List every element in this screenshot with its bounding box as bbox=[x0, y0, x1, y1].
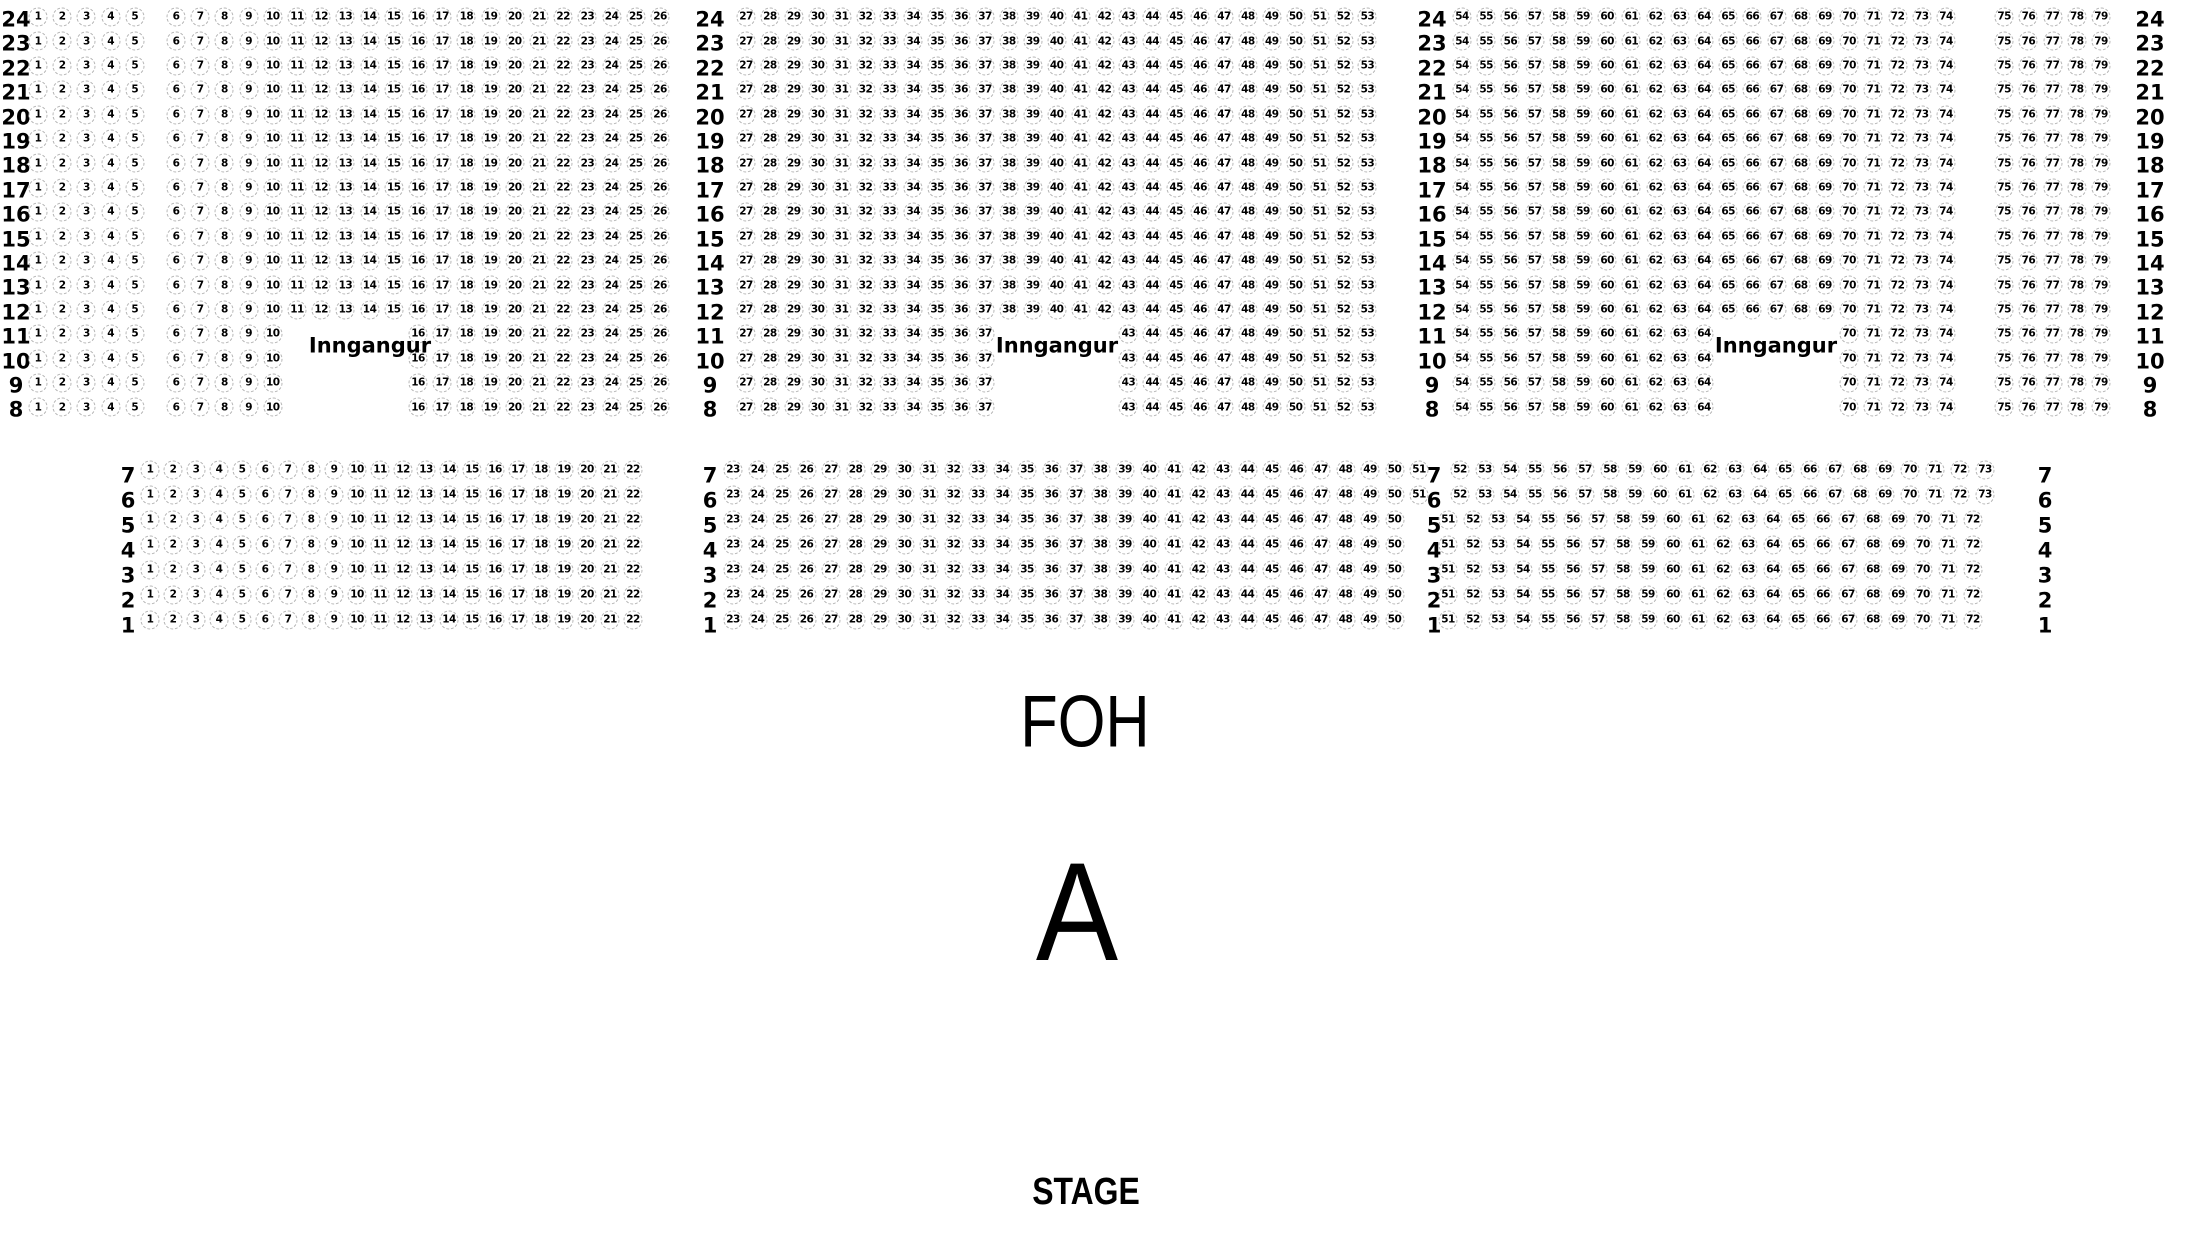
seat[interactable]: 32 bbox=[944, 561, 963, 580]
seat[interactable]: 30 bbox=[895, 611, 914, 630]
seat[interactable]: 21 bbox=[601, 486, 620, 505]
seat[interactable]: 48 bbox=[1336, 511, 1355, 530]
seat[interactable]: 1 bbox=[141, 536, 160, 555]
seat[interactable]: 36 bbox=[1042, 486, 1061, 505]
seat[interactable]: 49 bbox=[1361, 511, 1380, 530]
seat[interactable]: 38 bbox=[1091, 611, 1110, 630]
seat[interactable]: 51 bbox=[1439, 511, 1458, 530]
seat[interactable]: 39 bbox=[1116, 561, 1135, 580]
seat[interactable]: 47 bbox=[1312, 486, 1331, 505]
seat[interactable]: 24 bbox=[748, 536, 767, 555]
seat[interactable]: 14 bbox=[440, 536, 459, 555]
seat[interactable]: 68 bbox=[1851, 486, 1870, 505]
seat[interactable]: 12 bbox=[394, 511, 413, 530]
seat[interactable]: 28 bbox=[846, 461, 865, 480]
seat[interactable]: 27 bbox=[822, 511, 841, 530]
seat[interactable]: 4 bbox=[210, 461, 229, 480]
seat[interactable]: 66 bbox=[1814, 511, 1833, 530]
seat[interactable]: 22 bbox=[624, 561, 643, 580]
seat[interactable]: 28 bbox=[846, 511, 865, 530]
seat[interactable]: 60 bbox=[1651, 486, 1670, 505]
seat[interactable]: 22 bbox=[624, 536, 643, 555]
seat[interactable]: 42 bbox=[1189, 461, 1208, 480]
seat[interactable]: 54 bbox=[1514, 586, 1533, 605]
seat[interactable]: 12 bbox=[394, 486, 413, 505]
seat[interactable]: 67 bbox=[1839, 536, 1858, 555]
seat[interactable]: 60 bbox=[1664, 561, 1683, 580]
seat[interactable]: 29 bbox=[871, 586, 890, 605]
seat[interactable]: 60 bbox=[1664, 511, 1683, 530]
seat[interactable]: 21 bbox=[601, 611, 620, 630]
seat[interactable]: 43 bbox=[1214, 511, 1233, 530]
seat[interactable]: 73 bbox=[1976, 461, 1995, 480]
seat[interactable]: 39 bbox=[1116, 536, 1135, 555]
seat[interactable]: 45 bbox=[1263, 511, 1282, 530]
seat[interactable]: 70 bbox=[1901, 486, 1920, 505]
seat[interactable]: 40 bbox=[1140, 486, 1159, 505]
seat[interactable]: 61 bbox=[1689, 561, 1708, 580]
seat[interactable]: 65 bbox=[1789, 561, 1808, 580]
seat[interactable]: 68 bbox=[1851, 461, 1870, 480]
seat[interactable]: 71 bbox=[1939, 611, 1958, 630]
seat[interactable]: 59 bbox=[1639, 561, 1658, 580]
seat[interactable]: 53 bbox=[1489, 586, 1508, 605]
seat[interactable]: 52 bbox=[1464, 586, 1483, 605]
seat[interactable]: 2 bbox=[164, 511, 183, 530]
seat[interactable]: 46 bbox=[1287, 561, 1306, 580]
seat[interactable]: 3 bbox=[187, 536, 206, 555]
seat[interactable]: 63 bbox=[1739, 561, 1758, 580]
seat[interactable]: 23 bbox=[724, 536, 743, 555]
seat[interactable]: 1 bbox=[141, 486, 160, 505]
seat[interactable]: 37 bbox=[1067, 511, 1086, 530]
seat[interactable]: 60 bbox=[1664, 536, 1683, 555]
seat[interactable]: 67 bbox=[1826, 486, 1845, 505]
seat[interactable]: 61 bbox=[1676, 486, 1695, 505]
seat[interactable]: 31 bbox=[920, 511, 939, 530]
seat[interactable]: 7 bbox=[279, 461, 298, 480]
seat[interactable]: 59 bbox=[1626, 486, 1645, 505]
seat[interactable]: 19 bbox=[555, 461, 574, 480]
seat[interactable]: 12 bbox=[394, 536, 413, 555]
seat[interactable]: 36 bbox=[1042, 536, 1061, 555]
seat[interactable]: 32 bbox=[944, 486, 963, 505]
seat[interactable]: 29 bbox=[871, 461, 890, 480]
seat[interactable]: 63 bbox=[1739, 611, 1758, 630]
seat[interactable]: 65 bbox=[1789, 536, 1808, 555]
seat[interactable]: 3 bbox=[187, 611, 206, 630]
seat[interactable]: 39 bbox=[1116, 611, 1135, 630]
seat[interactable]: 57 bbox=[1589, 611, 1608, 630]
seat[interactable]: 35 bbox=[1018, 611, 1037, 630]
seat[interactable]: 45 bbox=[1263, 561, 1282, 580]
seat[interactable]: 56 bbox=[1564, 611, 1583, 630]
seat[interactable]: 13 bbox=[417, 561, 436, 580]
seat[interactable]: 68 bbox=[1864, 561, 1883, 580]
seat[interactable]: 24 bbox=[748, 461, 767, 480]
seat[interactable]: 68 bbox=[1864, 586, 1883, 605]
seat[interactable]: 47 bbox=[1312, 586, 1331, 605]
seat[interactable]: 40 bbox=[1140, 561, 1159, 580]
seat[interactable]: 27 bbox=[822, 486, 841, 505]
seat[interactable]: 17 bbox=[509, 536, 528, 555]
seat[interactable]: 38 bbox=[1091, 511, 1110, 530]
seat[interactable]: 46 bbox=[1287, 611, 1306, 630]
seat[interactable]: 65 bbox=[1776, 461, 1795, 480]
seat[interactable]: 38 bbox=[1091, 486, 1110, 505]
seat[interactable]: 9 bbox=[325, 611, 344, 630]
seat[interactable]: 43 bbox=[1214, 461, 1233, 480]
seat[interactable]: 47 bbox=[1312, 461, 1331, 480]
seat[interactable]: 64 bbox=[1764, 511, 1783, 530]
seat[interactable]: 19 bbox=[555, 586, 574, 605]
seat[interactable]: 43 bbox=[1214, 586, 1233, 605]
seat[interactable]: 38 bbox=[1091, 461, 1110, 480]
seat[interactable]: 8 bbox=[302, 611, 321, 630]
seat[interactable]: 27 bbox=[822, 461, 841, 480]
seat[interactable]: 5 bbox=[233, 611, 252, 630]
seat[interactable]: 37 bbox=[1067, 586, 1086, 605]
seat[interactable]: 30 bbox=[895, 586, 914, 605]
seat[interactable]: 21 bbox=[601, 586, 620, 605]
seat[interactable]: 59 bbox=[1626, 461, 1645, 480]
seat[interactable]: 48 bbox=[1336, 536, 1355, 555]
seat[interactable]: 59 bbox=[1639, 611, 1658, 630]
seat[interactable]: 50 bbox=[1385, 486, 1404, 505]
seat[interactable]: 29 bbox=[871, 511, 890, 530]
seat[interactable]: 56 bbox=[1564, 536, 1583, 555]
seat[interactable]: 55 bbox=[1539, 586, 1558, 605]
seat[interactable]: 5 bbox=[233, 511, 252, 530]
seat[interactable]: 25 bbox=[773, 611, 792, 630]
seat[interactable]: 19 bbox=[555, 561, 574, 580]
seat[interactable]: 25 bbox=[773, 511, 792, 530]
seat[interactable]: 14 bbox=[440, 486, 459, 505]
seat[interactable]: 53 bbox=[1476, 486, 1495, 505]
seat[interactable]: 64 bbox=[1751, 461, 1770, 480]
seat[interactable]: 10 bbox=[348, 511, 367, 530]
seat[interactable]: 35 bbox=[1018, 586, 1037, 605]
seat[interactable]: 9 bbox=[325, 486, 344, 505]
seat[interactable]: 25 bbox=[773, 561, 792, 580]
seat[interactable]: 54 bbox=[1514, 511, 1533, 530]
seat[interactable]: 58 bbox=[1614, 586, 1633, 605]
seat[interactable]: 65 bbox=[1789, 511, 1808, 530]
seat[interactable]: 13 bbox=[417, 586, 436, 605]
seat[interactable]: 65 bbox=[1776, 486, 1795, 505]
seat[interactable]: 49 bbox=[1361, 536, 1380, 555]
seat[interactable]: 41 bbox=[1165, 586, 1184, 605]
seat[interactable]: 26 bbox=[797, 586, 816, 605]
seat[interactable]: 34 bbox=[993, 561, 1012, 580]
seat[interactable]: 13 bbox=[417, 511, 436, 530]
seat[interactable]: 52 bbox=[1464, 511, 1483, 530]
seat[interactable]: 4 bbox=[210, 586, 229, 605]
seat[interactable]: 1 bbox=[141, 511, 160, 530]
seat[interactable]: 24 bbox=[748, 511, 767, 530]
seat[interactable]: 27 bbox=[822, 611, 841, 630]
seat[interactable]: 7 bbox=[279, 486, 298, 505]
seat[interactable]: 36 bbox=[1042, 611, 1061, 630]
seat[interactable]: 45 bbox=[1263, 486, 1282, 505]
seat[interactable]: 23 bbox=[724, 511, 743, 530]
seat[interactable]: 9 bbox=[325, 511, 344, 530]
seat[interactable]: 28 bbox=[846, 561, 865, 580]
seat[interactable]: 2 bbox=[164, 461, 183, 480]
seat[interactable]: 17 bbox=[509, 586, 528, 605]
seat[interactable]: 3 bbox=[187, 561, 206, 580]
seat[interactable]: 49 bbox=[1361, 461, 1380, 480]
seat[interactable]: 64 bbox=[1764, 586, 1783, 605]
seat[interactable]: 5 bbox=[233, 586, 252, 605]
seat[interactable]: 70 bbox=[1914, 561, 1933, 580]
seat[interactable]: 67 bbox=[1826, 461, 1845, 480]
seat[interactable]: 55 bbox=[1539, 561, 1558, 580]
seat[interactable]: 48 bbox=[1336, 611, 1355, 630]
seat[interactable]: 50 bbox=[1385, 511, 1404, 530]
seat[interactable]: 63 bbox=[1739, 536, 1758, 555]
seat[interactable]: 55 bbox=[1526, 461, 1545, 480]
seat[interactable]: 14 bbox=[440, 461, 459, 480]
seat[interactable]: 23 bbox=[724, 561, 743, 580]
seat[interactable]: 28 bbox=[846, 611, 865, 630]
seat[interactable]: 4 bbox=[210, 511, 229, 530]
seat[interactable]: 32 bbox=[944, 461, 963, 480]
seat[interactable]: 66 bbox=[1814, 611, 1833, 630]
seat[interactable]: 58 bbox=[1614, 511, 1633, 530]
seat[interactable]: 43 bbox=[1214, 561, 1233, 580]
seat[interactable]: 36 bbox=[1042, 561, 1061, 580]
seat[interactable]: 63 bbox=[1739, 511, 1758, 530]
seat[interactable]: 52 bbox=[1451, 461, 1470, 480]
seat[interactable]: 62 bbox=[1714, 586, 1733, 605]
seat[interactable]: 39 bbox=[1116, 511, 1135, 530]
seat[interactable]: 21 bbox=[601, 461, 620, 480]
seat[interactable]: 48 bbox=[1336, 461, 1355, 480]
seat[interactable]: 53 bbox=[1476, 461, 1495, 480]
seat[interactable]: 19 bbox=[555, 536, 574, 555]
seat[interactable]: 70 bbox=[1914, 611, 1933, 630]
seat[interactable]: 41 bbox=[1165, 461, 1184, 480]
seat[interactable]: 38 bbox=[1091, 586, 1110, 605]
seat[interactable]: 33 bbox=[969, 461, 988, 480]
seat[interactable]: 25 bbox=[773, 486, 792, 505]
seat[interactable]: 20 bbox=[578, 511, 597, 530]
seat[interactable]: 14 bbox=[440, 586, 459, 605]
seat[interactable]: 22 bbox=[624, 586, 643, 605]
seat[interactable]: 8 bbox=[302, 511, 321, 530]
seat[interactable]: 71 bbox=[1939, 536, 1958, 555]
seat[interactable]: 20 bbox=[578, 461, 597, 480]
seat[interactable]: 1 bbox=[141, 586, 160, 605]
seat[interactable]: 3 bbox=[187, 586, 206, 605]
seat[interactable]: 44 bbox=[1238, 611, 1257, 630]
seat[interactable]: 67 bbox=[1839, 561, 1858, 580]
seat[interactable]: 3 bbox=[187, 511, 206, 530]
seat[interactable]: 8 bbox=[302, 486, 321, 505]
seat[interactable]: 23 bbox=[724, 611, 743, 630]
seat[interactable]: 27 bbox=[822, 586, 841, 605]
seat[interactable]: 32 bbox=[944, 536, 963, 555]
seat[interactable]: 73 bbox=[1976, 486, 1995, 505]
seat[interactable]: 42 bbox=[1189, 511, 1208, 530]
seat[interactable]: 19 bbox=[555, 511, 574, 530]
seat[interactable]: 43 bbox=[1214, 486, 1233, 505]
seat[interactable]: 30 bbox=[895, 536, 914, 555]
seat[interactable]: 33 bbox=[969, 486, 988, 505]
seat[interactable]: 13 bbox=[417, 611, 436, 630]
seat[interactable]: 40 bbox=[1140, 586, 1159, 605]
seat[interactable]: 64 bbox=[1764, 561, 1783, 580]
seat[interactable]: 39 bbox=[1116, 486, 1135, 505]
seat[interactable]: 33 bbox=[969, 561, 988, 580]
seat[interactable]: 44 bbox=[1238, 486, 1257, 505]
seat[interactable]: 60 bbox=[1664, 611, 1683, 630]
seat[interactable]: 55 bbox=[1539, 611, 1558, 630]
seat[interactable]: 15 bbox=[463, 511, 482, 530]
seat[interactable]: 40 bbox=[1140, 536, 1159, 555]
seat[interactable]: 8 bbox=[302, 461, 321, 480]
seat[interactable]: 18 bbox=[532, 611, 551, 630]
seat[interactable]: 28 bbox=[846, 586, 865, 605]
seat[interactable]: 43 bbox=[1214, 611, 1233, 630]
seat[interactable]: 16 bbox=[486, 536, 505, 555]
seat[interactable]: 17 bbox=[509, 511, 528, 530]
seat[interactable]: 22 bbox=[624, 486, 643, 505]
seat[interactable]: 23 bbox=[724, 486, 743, 505]
seat[interactable]: 26 bbox=[797, 536, 816, 555]
seat[interactable]: 41 bbox=[1165, 511, 1184, 530]
seat[interactable]: 28 bbox=[846, 486, 865, 505]
seat[interactable]: 34 bbox=[993, 461, 1012, 480]
seat[interactable]: 67 bbox=[1839, 611, 1858, 630]
seat[interactable]: 20 bbox=[578, 611, 597, 630]
seat[interactable]: 21 bbox=[601, 536, 620, 555]
seat[interactable]: 46 bbox=[1287, 486, 1306, 505]
seat[interactable]: 8 bbox=[302, 561, 321, 580]
seat[interactable]: 10 bbox=[348, 536, 367, 555]
seat[interactable]: 68 bbox=[1864, 611, 1883, 630]
seat[interactable]: 66 bbox=[1814, 586, 1833, 605]
seat[interactable]: 26 bbox=[797, 511, 816, 530]
seat[interactable]: 50 bbox=[1385, 586, 1404, 605]
seat[interactable]: 62 bbox=[1714, 561, 1733, 580]
seat[interactable]: 44 bbox=[1238, 561, 1257, 580]
seat[interactable]: 26 bbox=[797, 486, 816, 505]
seat[interactable]: 47 bbox=[1312, 611, 1331, 630]
seat[interactable]: 6 bbox=[256, 461, 275, 480]
seat[interactable]: 69 bbox=[1876, 486, 1895, 505]
seat[interactable]: 72 bbox=[1951, 461, 1970, 480]
seat[interactable]: 24 bbox=[748, 486, 767, 505]
seat[interactable]: 10 bbox=[348, 561, 367, 580]
seat[interactable]: 2 bbox=[164, 586, 183, 605]
seat[interactable]: 18 bbox=[532, 486, 551, 505]
seat[interactable]: 33 bbox=[969, 611, 988, 630]
seat[interactable]: 55 bbox=[1526, 486, 1545, 505]
seat[interactable]: 37 bbox=[1067, 461, 1086, 480]
seat[interactable]: 10 bbox=[348, 586, 367, 605]
seat[interactable]: 6 bbox=[256, 611, 275, 630]
seat[interactable]: 25 bbox=[773, 586, 792, 605]
seat[interactable]: 67 bbox=[1839, 511, 1858, 530]
seat[interactable]: 57 bbox=[1589, 536, 1608, 555]
seat[interactable]: 10 bbox=[348, 461, 367, 480]
seat[interactable]: 13 bbox=[417, 461, 436, 480]
seat[interactable]: 11 bbox=[371, 561, 390, 580]
seat[interactable]: 56 bbox=[1564, 586, 1583, 605]
seat[interactable]: 56 bbox=[1564, 561, 1583, 580]
seat[interactable]: 52 bbox=[1464, 536, 1483, 555]
seat[interactable]: 9 bbox=[325, 561, 344, 580]
seat[interactable]: 49 bbox=[1361, 486, 1380, 505]
seat[interactable]: 57 bbox=[1589, 561, 1608, 580]
seat[interactable]: 56 bbox=[1551, 461, 1570, 480]
seat[interactable]: 42 bbox=[1189, 536, 1208, 555]
seat[interactable]: 33 bbox=[969, 586, 988, 605]
seat[interactable]: 3 bbox=[187, 461, 206, 480]
seat[interactable]: 69 bbox=[1889, 586, 1908, 605]
seat[interactable]: 31 bbox=[920, 486, 939, 505]
seat[interactable]: 25 bbox=[773, 461, 792, 480]
seat[interactable]: 41 bbox=[1165, 486, 1184, 505]
seat[interactable]: 19 bbox=[555, 486, 574, 505]
seat[interactable]: 51 bbox=[1439, 586, 1458, 605]
seat[interactable]: 57 bbox=[1576, 461, 1595, 480]
seat[interactable]: 50 bbox=[1385, 611, 1404, 630]
seat[interactable]: 7 bbox=[279, 586, 298, 605]
seat[interactable]: 62 bbox=[1714, 511, 1733, 530]
seat[interactable]: 4 bbox=[210, 536, 229, 555]
seat[interactable]: 52 bbox=[1464, 611, 1483, 630]
seat[interactable]: 37 bbox=[1067, 536, 1086, 555]
seat[interactable]: 10 bbox=[348, 486, 367, 505]
seat[interactable]: 10 bbox=[348, 611, 367, 630]
seat[interactable]: 40 bbox=[1140, 511, 1159, 530]
seat[interactable]: 14 bbox=[440, 511, 459, 530]
seat[interactable]: 30 bbox=[895, 511, 914, 530]
seat[interactable]: 32 bbox=[944, 511, 963, 530]
seat[interactable]: 12 bbox=[394, 561, 413, 580]
seat[interactable]: 16 bbox=[486, 511, 505, 530]
seat[interactable]: 69 bbox=[1876, 461, 1895, 480]
seat[interactable]: 67 bbox=[1839, 586, 1858, 605]
seat[interactable]: 57 bbox=[1589, 511, 1608, 530]
seat[interactable]: 2 bbox=[164, 486, 183, 505]
seat[interactable]: 71 bbox=[1939, 561, 1958, 580]
seat[interactable]: 8 bbox=[302, 586, 321, 605]
seat[interactable]: 37 bbox=[1067, 561, 1086, 580]
seat[interactable]: 5 bbox=[233, 461, 252, 480]
seat[interactable]: 54 bbox=[1501, 461, 1520, 480]
seat[interactable]: 11 bbox=[371, 511, 390, 530]
seat[interactable]: 71 bbox=[1939, 511, 1958, 530]
seat[interactable]: 51 bbox=[1439, 536, 1458, 555]
seat[interactable]: 50 bbox=[1385, 561, 1404, 580]
seat[interactable]: 45 bbox=[1263, 536, 1282, 555]
seat[interactable]: 27 bbox=[822, 561, 841, 580]
seat[interactable]: 60 bbox=[1651, 461, 1670, 480]
seat[interactable]: 4 bbox=[210, 611, 229, 630]
seat[interactable]: 62 bbox=[1701, 461, 1720, 480]
seat[interactable]: 52 bbox=[1451, 486, 1470, 505]
seat[interactable]: 43 bbox=[1214, 536, 1233, 555]
seat[interactable]: 34 bbox=[993, 511, 1012, 530]
seat[interactable]: 62 bbox=[1714, 611, 1733, 630]
seat[interactable]: 22 bbox=[624, 511, 643, 530]
seat[interactable]: 31 bbox=[920, 561, 939, 580]
seat[interactable]: 7 bbox=[279, 611, 298, 630]
